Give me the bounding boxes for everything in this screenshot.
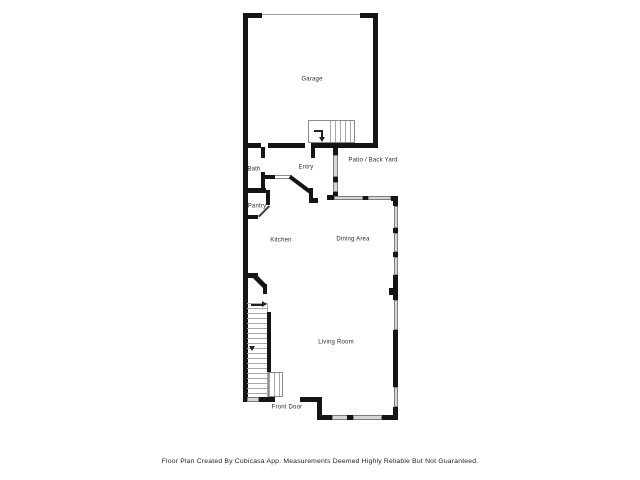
wall-stairs-side <box>267 312 271 372</box>
window-right-3 <box>394 257 398 275</box>
wall-kitchen-top <box>243 188 266 193</box>
wall-bottom-right <box>382 415 398 420</box>
wall-bottom-1 <box>317 415 333 420</box>
garage-door-line <box>262 14 360 16</box>
window-patio-1 <box>333 155 338 177</box>
window-right-1 <box>394 206 398 228</box>
wall-stub-entry-door <box>311 148 315 158</box>
window-right-5 <box>394 387 398 407</box>
wall-bottom-left-1 <box>259 397 275 402</box>
window-dining-top-2 <box>368 196 391 200</box>
wall-entry-sw <box>261 175 275 179</box>
wall-garage-bottom-2 <box>268 143 305 148</box>
room-label-living-room: Living Room <box>318 340 354 347</box>
wall-garage-right <box>373 13 378 148</box>
room-label-front-door: Front Door <box>272 405 303 412</box>
footer-disclaimer: Floor Plan Created By Cubicasa App. Meas… <box>0 458 640 465</box>
garage-stairs-treads <box>330 121 354 142</box>
window-bottom-1 <box>332 415 348 420</box>
room-label-entry: Entry <box>298 165 313 172</box>
room-label-garage: Garage <box>301 77 322 84</box>
window-dining-top-1 <box>334 196 363 200</box>
window-patio-2 <box>333 182 338 192</box>
window-bottom-2 <box>353 415 382 420</box>
wall-pantry-stub <box>266 190 270 205</box>
room-label-patio-back-yard: Patio / Back Yard <box>348 158 397 165</box>
wall-entry-chamfer <box>289 175 311 193</box>
wall-patio-1 <box>333 148 338 155</box>
wall-garage-left <box>243 13 248 148</box>
wall-stub-bath-door <box>261 147 265 158</box>
wall-right-1 <box>393 196 398 206</box>
room-label-pantry: Pantry <box>248 204 267 211</box>
wall-right-4 <box>393 275 398 300</box>
wall-entry-corner <box>309 198 318 203</box>
stairs-arrow-head-right <box>262 301 267 307</box>
floor-plan: Garage Patio / Back Yard Bath Entry Pant… <box>0 0 640 480</box>
stairs-turn <box>268 372 283 397</box>
wall-garage-bottom-3 <box>311 143 378 148</box>
wall-right-5 <box>393 330 398 387</box>
garage-stairs-arrow-head <box>319 137 325 142</box>
room-label-dining-area: Dining Area <box>336 237 369 244</box>
window-right-2 <box>394 233 398 252</box>
wall-stair-enclosure-side <box>263 284 267 294</box>
stairs-arrow-head-down <box>249 346 255 351</box>
wall-pantry-bottom <box>243 215 258 219</box>
room-label-bath: Bath <box>247 167 260 174</box>
window-right-4 <box>394 300 398 330</box>
wall-right-notch <box>389 288 393 295</box>
window-bottom-left <box>247 397 259 402</box>
room-label-kitchen: Kitchen <box>270 238 291 245</box>
